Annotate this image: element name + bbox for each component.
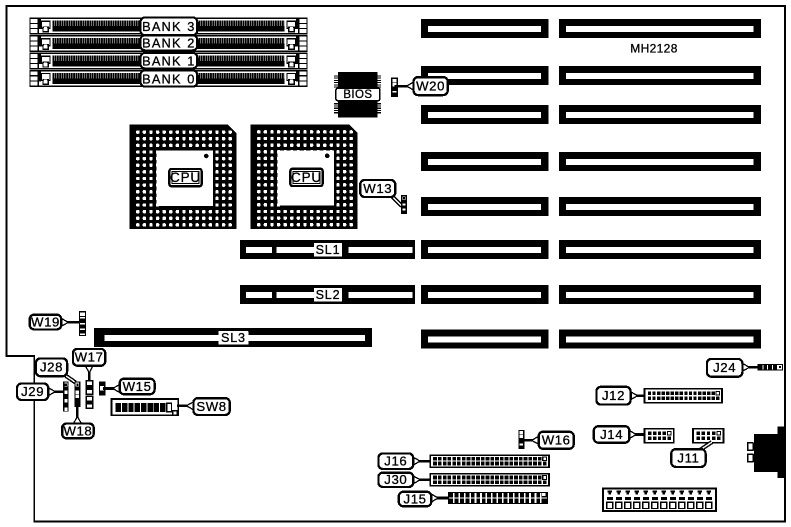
svg-text:J15: J15 [404, 491, 427, 506]
svg-text:SW8: SW8 [196, 399, 226, 414]
svg-text:W19: W19 [31, 314, 60, 329]
svg-text:W15: W15 [123, 379, 152, 394]
svg-text:W18: W18 [63, 423, 92, 438]
svg-text:J28: J28 [40, 360, 63, 375]
svg-text:BANK 0: BANK 0 [142, 71, 195, 86]
svg-text:J16: J16 [384, 454, 407, 469]
svg-text:W17: W17 [75, 350, 104, 365]
svg-text:J12: J12 [602, 388, 625, 403]
svg-text:J29: J29 [21, 384, 44, 399]
svg-text:J14: J14 [600, 427, 623, 442]
svg-text:J30: J30 [384, 472, 407, 487]
svg-text:SL1: SL1 [316, 243, 341, 257]
svg-text:SL3: SL3 [221, 331, 246, 345]
svg-text:W13: W13 [363, 181, 392, 196]
svg-text:W16: W16 [542, 433, 571, 448]
svg-text:MH2128: MH2128 [630, 42, 677, 56]
svg-text:SL2: SL2 [316, 288, 341, 302]
svg-text:BANK 2: BANK 2 [142, 36, 195, 51]
svg-text:BANK 3: BANK 3 [142, 19, 195, 34]
svg-text:BIOS: BIOS [343, 89, 372, 101]
svg-text:J11: J11 [677, 450, 699, 465]
svg-text:W20: W20 [416, 78, 445, 93]
svg-text:J24: J24 [713, 360, 736, 375]
svg-text:BANK 1: BANK 1 [142, 53, 195, 68]
